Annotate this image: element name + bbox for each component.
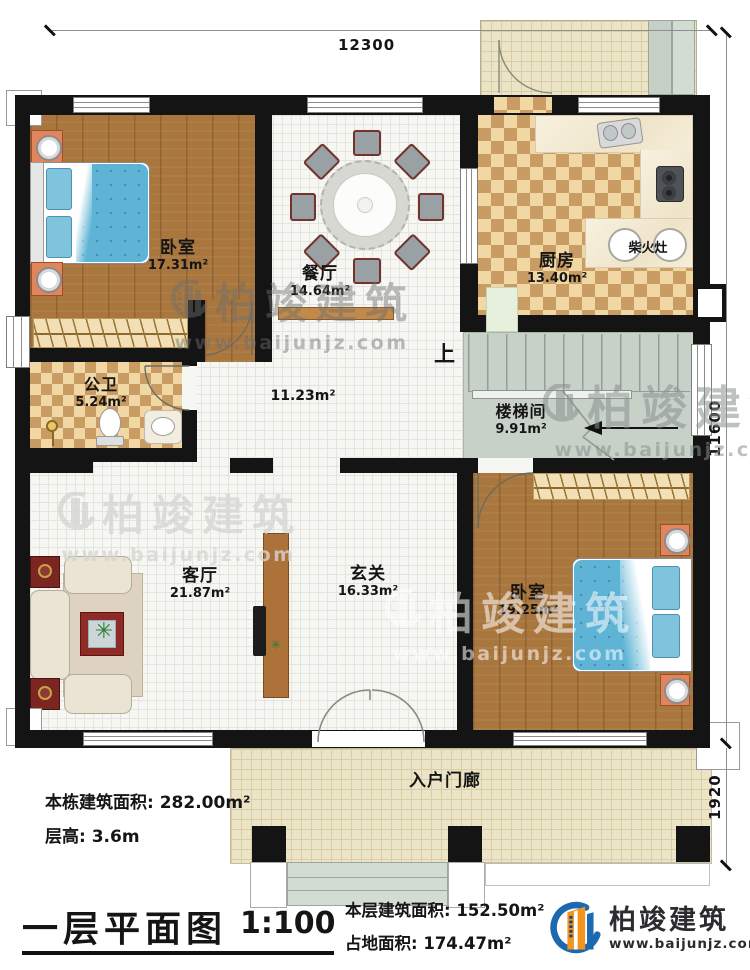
- window-dining-top: [307, 97, 423, 113]
- window-living-bottom: [83, 732, 213, 746]
- wardrobe-2: [533, 473, 690, 500]
- room-label-bedroom2: 卧室 19.25m²: [480, 583, 576, 618]
- side-table-lamp: [38, 564, 52, 578]
- dining-table-center: [357, 197, 373, 213]
- table-lamp: [36, 267, 62, 293]
- sofa-left: [30, 590, 70, 680]
- window-kitchen-top: [578, 97, 660, 113]
- back-porch-step: [672, 20, 695, 95]
- table-lamp: [36, 135, 62, 161]
- wall-living-top-b: [230, 458, 273, 473]
- wall-under-wardrobe: [15, 348, 205, 362]
- table-lamp: [664, 678, 690, 704]
- tv-plant: ✳: [268, 638, 284, 654]
- dining-chair: [353, 130, 381, 156]
- side-table-lamp: [38, 686, 52, 700]
- back-door-threshold: [494, 97, 552, 113]
- dining-chair: [290, 193, 316, 221]
- cooktop-burner: [662, 171, 676, 185]
- flue-box: [693, 284, 727, 322]
- room-label-bedroom1: 卧室 17.31m²: [130, 238, 226, 273]
- shower-head: [46, 420, 58, 432]
- cooktop-burner: [662, 186, 676, 200]
- dimension-line-right: [726, 32, 727, 744]
- stat-floor-area: 本层建筑面积: 152.50m²: [345, 897, 544, 921]
- dimension-line-porch: [726, 748, 727, 866]
- room-label-living: 客厅 21.87m²: [152, 566, 248, 601]
- wall-bedroom1-dining: [255, 115, 272, 362]
- wall-bedroom2-top: [533, 458, 710, 473]
- window-bedroom2-bottom: [513, 732, 647, 746]
- sheet-title: 一层平面图: [22, 900, 227, 952]
- dimension-line-top: [50, 30, 712, 31]
- note-floor-height: 层高: 3.6m: [45, 822, 140, 847]
- bathroom-door-opening: [182, 366, 197, 410]
- brand-name: 柏竣建筑: [609, 906, 750, 936]
- shower-stem: [52, 432, 54, 446]
- room-label-kitchen: 厨房 13.40m²: [509, 251, 605, 286]
- room-label-corridor: 11.23m²: [255, 388, 351, 405]
- window-bedroom1-top: [73, 97, 150, 113]
- dimension-label-porch: 1920: [706, 762, 724, 820]
- bed-1-pillow: [46, 216, 72, 258]
- sideboard: [278, 307, 394, 320]
- plant: ✳: [90, 618, 118, 646]
- porch-column: [252, 826, 286, 862]
- tv: [253, 606, 266, 656]
- wardrobe-1: [33, 318, 188, 348]
- room-label-dining: 餐厅 14.64m²: [272, 264, 368, 299]
- window-bathroom-left: [6, 316, 30, 368]
- back-porch-step: [648, 20, 672, 95]
- stairs-handrail: [472, 390, 632, 399]
- kitchen-door-mat: [486, 287, 518, 332]
- tv-cabinet: [263, 533, 289, 698]
- room-label-bathroom: 公卫 5.24m²: [53, 376, 149, 410]
- toilet-bowl: [99, 408, 121, 438]
- title-underline: [22, 951, 334, 955]
- porch-column: [676, 826, 710, 862]
- room-label-stairwell: 楼梯间 9.91m²: [473, 403, 569, 437]
- brand-text: 柏竣建筑 www.baijunjz.com: [609, 906, 750, 952]
- wall-left: [15, 95, 30, 748]
- brand-website: www.baijunjz.com: [609, 936, 750, 952]
- bed-1-headboard: [30, 162, 44, 264]
- stairs-treads: [468, 334, 690, 392]
- wall-foyer-bedroom2: [457, 458, 473, 748]
- sofa-top: [64, 556, 132, 594]
- porch-step-rail: [250, 862, 287, 908]
- stat-footprint-area: 占地面积: 174.47m²: [345, 930, 511, 954]
- bedroom1-door-bay: [205, 300, 258, 362]
- porch-slab-edge: [485, 862, 710, 886]
- note-building-area: 本栋建筑面积: 282.00m²: [45, 788, 250, 813]
- brand-logo-icon: [545, 901, 601, 957]
- window-dining-kitchen-pass: [460, 168, 478, 264]
- sofa-bottom: [64, 674, 132, 714]
- bedroom2-door-opening: [478, 458, 533, 473]
- brand-logo: 柏竣建筑 www.baijunjz.com: [545, 901, 750, 957]
- wood-stove-label: 柴火灶: [598, 237, 698, 256]
- bed-1-pillow: [46, 168, 72, 210]
- porch-column: [448, 826, 482, 862]
- wall-living-top-a: [15, 458, 93, 473]
- entry-door-opening: [312, 731, 425, 747]
- table-lamp: [664, 528, 690, 554]
- dimension-label-right: 11600: [706, 385, 724, 457]
- sheet-scale: 1:100: [240, 906, 336, 941]
- bed-1-sheet-fold: [76, 164, 92, 262]
- dimension-label-top: 12300: [338, 36, 395, 54]
- dining-chair: [418, 193, 444, 221]
- bathroom-sink-basin: [151, 417, 175, 436]
- room-label-porch: 入户门廊: [385, 771, 505, 791]
- bed-2-pillow: [652, 566, 680, 610]
- room-label-foyer: 玄关 16.33m²: [320, 564, 416, 599]
- toilet-tank: [96, 436, 124, 446]
- bed-2-pillow: [652, 614, 680, 658]
- floor-plan-canvas: 12300 11600 1920: [0, 0, 750, 970]
- bed-2-sheet-fold: [620, 560, 650, 670]
- stairs-up-label: 上: [434, 338, 455, 368]
